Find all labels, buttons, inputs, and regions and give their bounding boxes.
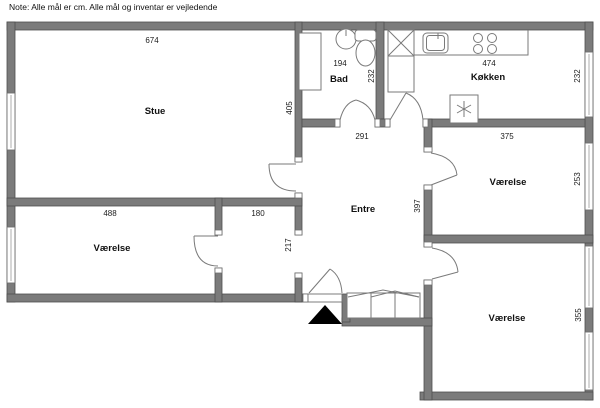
label-entre: Entre	[351, 204, 375, 215]
door-room-bottom	[432, 248, 458, 279]
wall-stue-bottom	[7, 198, 302, 206]
sink-icon	[336, 29, 356, 49]
entrance	[308, 294, 342, 324]
toilet-icon	[355, 30, 376, 66]
fridge-icon	[388, 30, 414, 56]
wall-rightrooms-divider	[424, 235, 593, 243]
dim-stue-height: 405	[285, 101, 294, 115]
wall-leftroom-nook-a	[215, 198, 222, 235]
wardrobe	[347, 290, 420, 318]
dim-entre-width: 291	[355, 132, 369, 141]
kitchen-fixtures	[388, 30, 528, 123]
wall-band-a	[302, 119, 340, 127]
dim-nook-width: 180	[251, 209, 265, 218]
dim-kitchen-height: 232	[573, 69, 582, 83]
shower-cabinet	[299, 33, 321, 90]
dim-nook-height: 217	[284, 238, 293, 252]
door-jambs	[215, 119, 432, 302]
dim-room-mid-height: 253	[573, 172, 582, 186]
label-room-mid: Værelse	[490, 177, 527, 188]
dim-bad-width: 194	[333, 59, 347, 68]
dim-room-bottom-height: 355	[574, 308, 583, 322]
wall-wardrobe-bottom	[342, 318, 432, 326]
wall-bottom-right	[420, 392, 593, 400]
door-room-mid	[431, 153, 457, 185]
kitchen-sink-icon	[423, 33, 448, 53]
door-bad	[340, 100, 375, 120]
wall-band-c	[423, 119, 585, 127]
dim-entre-height: 397	[413, 199, 422, 213]
floorplan: Note: Alle mål er cm. Alle mål og invent…	[0, 0, 600, 408]
wall-bad-kitchen	[376, 22, 384, 119]
dim-kitchen-width: 474	[482, 59, 496, 68]
entrance-arrow-icon	[308, 305, 342, 324]
dim-room-left-width: 488	[103, 209, 117, 218]
door-stue	[269, 164, 296, 191]
tall-cabinet	[388, 56, 414, 92]
door-room-left	[194, 236, 218, 266]
door-kitchen	[390, 93, 423, 120]
floorplan-drawing: Stue Bad Køkken Entre Værelse Værelse Væ…	[0, 0, 600, 408]
label-kitchen: Køkken	[471, 72, 506, 83]
dim-room-mid-width: 375	[500, 132, 514, 141]
labels: Stue Bad Køkken Entre Værelse Værelse Væ…	[94, 36, 583, 324]
note-text: Note: Alle mål er cm. Alle mål og invent…	[9, 2, 217, 12]
wall-entre-right-c	[424, 280, 432, 400]
label-stue: Stue	[145, 106, 166, 117]
floor-drain-icon	[450, 95, 478, 123]
dim-bad-height: 232	[367, 69, 376, 83]
label-room-bottom: Værelse	[489, 313, 526, 324]
label-room-left: Værelse	[94, 243, 131, 254]
wall-bottom-left	[7, 294, 308, 302]
entrance-threshold	[308, 294, 342, 302]
dim-stue-width: 674	[145, 36, 159, 45]
stove-icon	[474, 34, 497, 54]
door-entrance	[309, 269, 342, 293]
label-bad: Bad	[330, 74, 348, 85]
